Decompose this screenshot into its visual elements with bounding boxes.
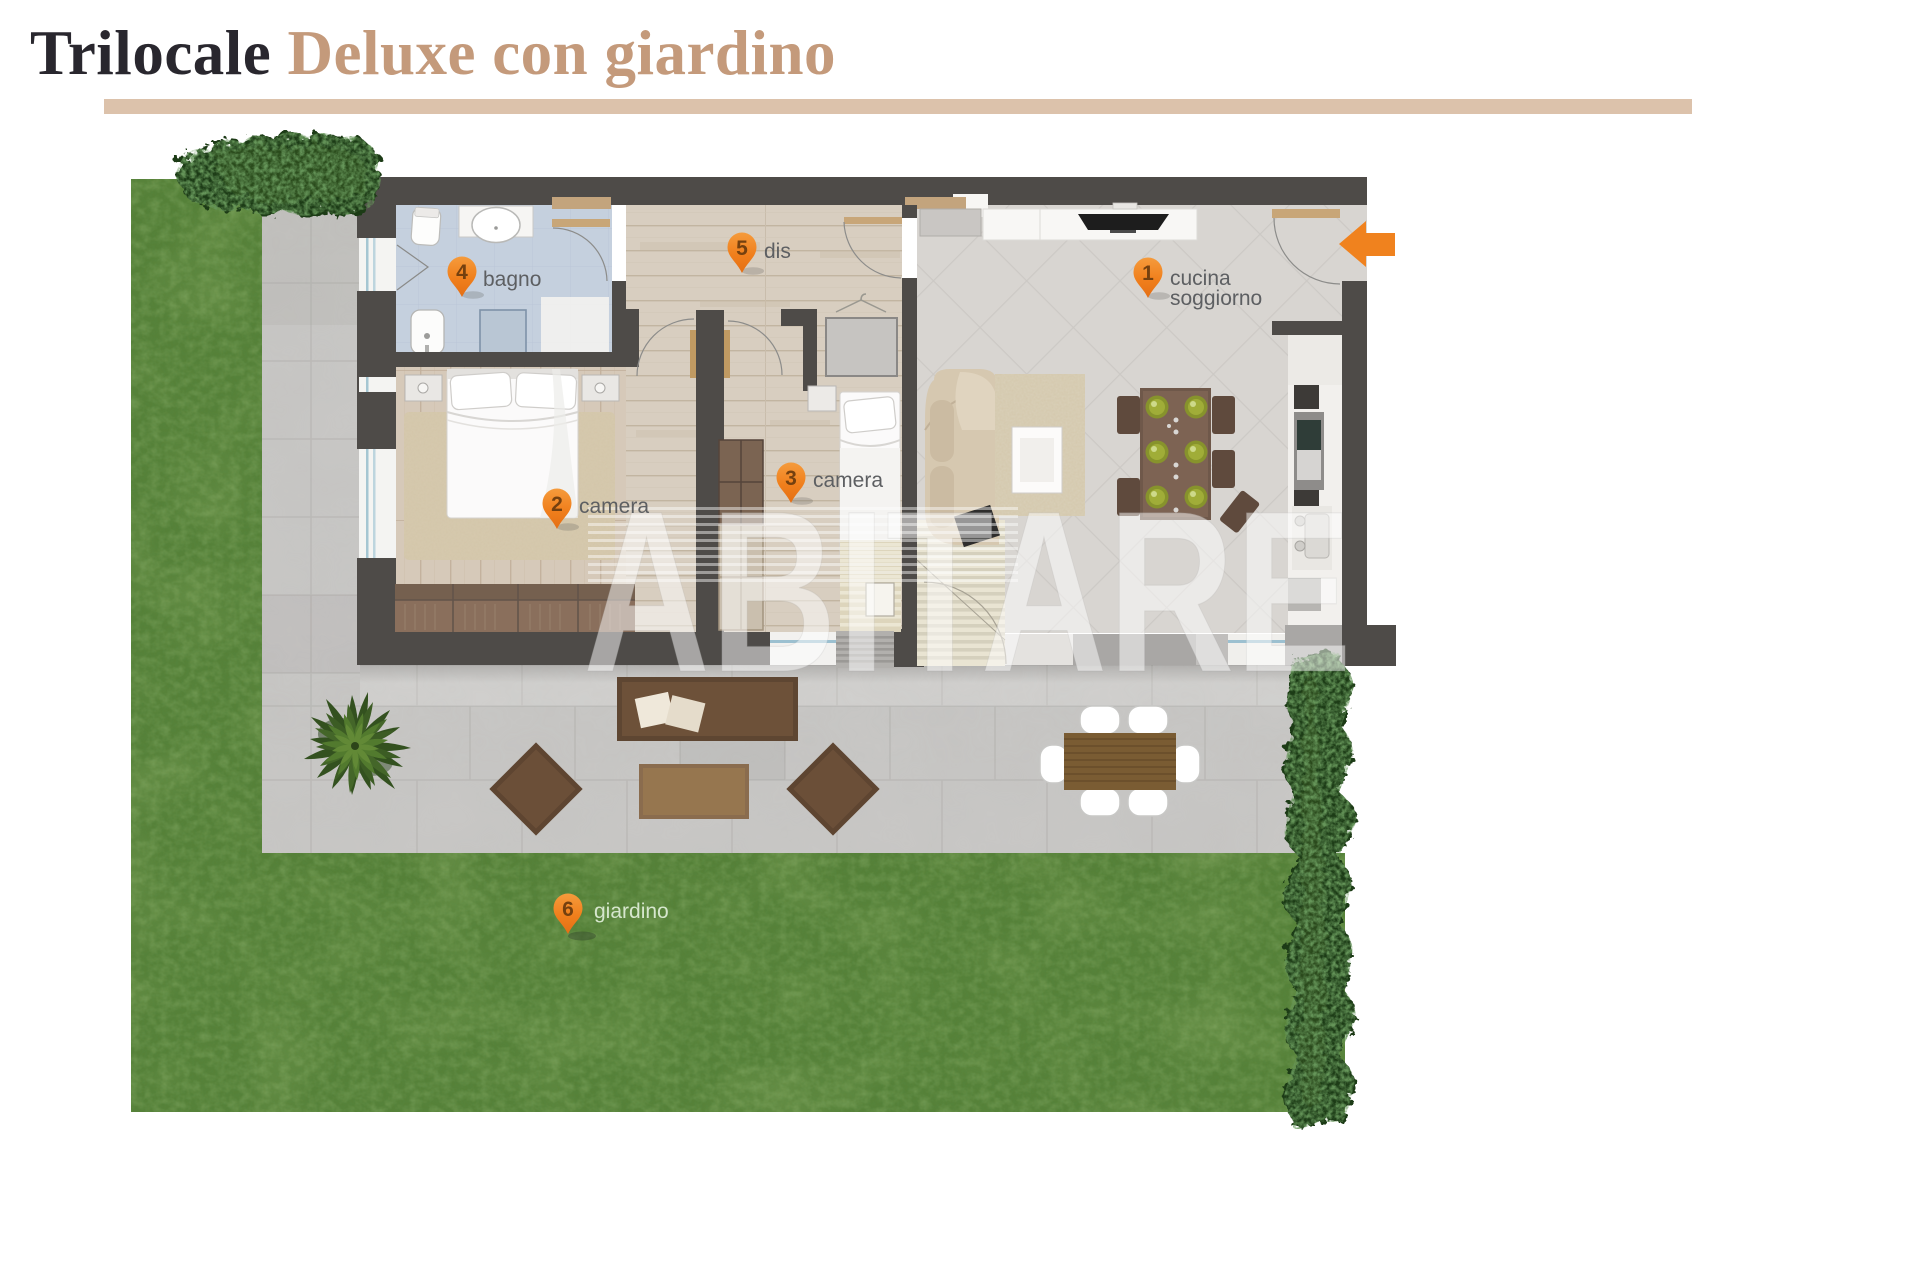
svg-text:6: 6 <box>562 898 574 921</box>
svg-text:camera: camera <box>813 469 883 492</box>
svg-text:1: 1 <box>1142 262 1154 285</box>
svg-text:bagno: bagno <box>483 268 541 291</box>
svg-text:soggiorno: soggiorno <box>1170 287 1262 310</box>
svg-text:4: 4 <box>456 261 468 284</box>
svg-text:5: 5 <box>736 237 748 260</box>
svg-text:giardino: giardino <box>594 900 669 923</box>
svg-text:camera: camera <box>579 495 649 518</box>
svg-text:dis: dis <box>764 240 791 263</box>
svg-text:ABITARE: ABITARE <box>583 463 1352 720</box>
svg-text:3: 3 <box>785 467 797 490</box>
svg-text:2: 2 <box>551 493 563 516</box>
